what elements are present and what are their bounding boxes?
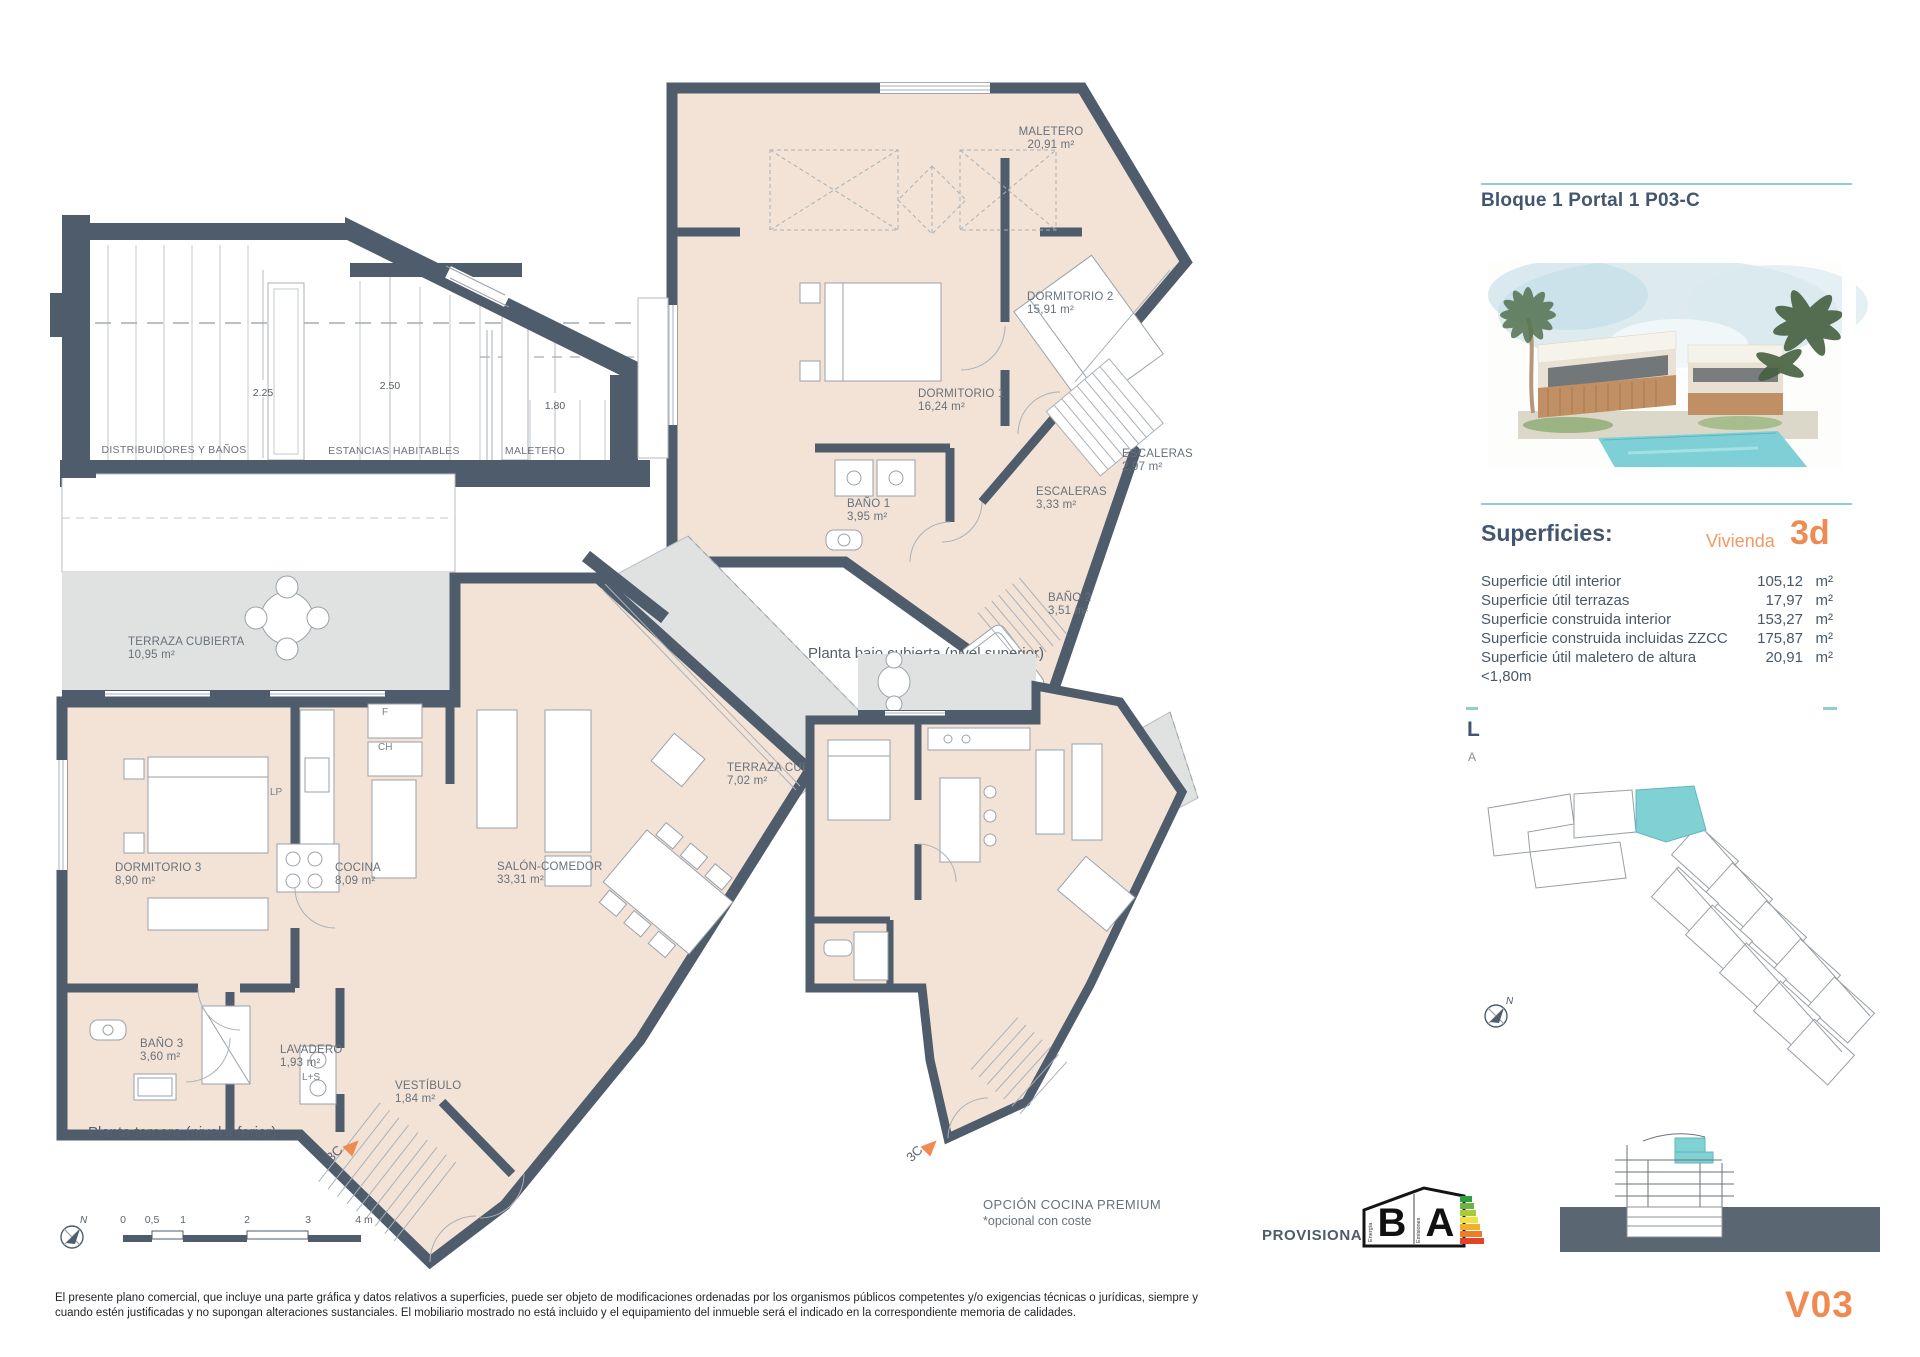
superficie-row: Superficie construida interior153,27m² [1481,610,1833,629]
cabinet [368,742,422,776]
room-label-dormitorio1: DORMITORIO 116,24 m² [918,388,1005,414]
svg-text:0: 0 [120,1214,126,1226]
room-label-escaleras: ESCALERAS3,33 m² [1036,486,1107,512]
room-label-bano3: BAÑO 33,60 m² [140,1038,183,1064]
height-dim: 1.80 [545,400,565,412]
disclaimer-line-2: cuando estén justificadas y no supongan … [55,1306,1076,1321]
toilet [824,940,852,956]
north-compass-icon: N [1485,996,1514,1027]
highlighted-floor [1675,1138,1705,1152]
lower-plan-caption: Planta tercera (nivel inferior) [88,1124,276,1141]
svg-text:1: 1 [180,1214,186,1226]
building-rendering [1478,253,1852,477]
sofa [1072,744,1102,840]
superficie-row: Superficie útil terrazas17,97m² [1481,591,1833,610]
kitchen-counter [928,728,1030,750]
zone-label: MALETERO [505,445,565,457]
superficies-heading: Superficies: [1481,520,1613,547]
toilet [90,1020,126,1040]
appliance-label-f: F [382,707,388,718]
svg-text:4 m: 4 m [355,1214,373,1226]
superficies-table: Superficie útil interior105,12m² Superfi… [1481,572,1833,686]
bed [148,757,268,853]
energy-rating-label: B A Energía Emisiones [1356,1180,1486,1260]
room-label-dormitorio2: DORMITORIO 215,91 m² [1027,291,1114,317]
teal-divider [1481,503,1852,505]
premium-plan-title: OPCIÓN COCINA PREMIUM [983,1197,1161,1212]
covered-terrace [62,572,455,694]
sheet-version: V03 [1785,1284,1854,1326]
energy-letter-b: B [1378,1201,1407,1245]
nightstand [124,759,144,779]
svg-text:N: N [1506,996,1514,1007]
north-compass-icon: N [61,1215,88,1248]
highlighted-unit [1636,786,1706,842]
room-label-salon: SALÓN-COMEDOR33,31 m² [497,861,602,887]
zone-label: ESTANCIAS HABITABLES [328,445,460,457]
building-section-key [1555,1125,1885,1260]
svg-text:N: N [80,1215,88,1226]
scale-bar: N 0 0,5 1 2 3 4 m [58,1205,388,1260]
teal-divider [1481,183,1852,185]
nightstand [124,833,144,853]
kitchen-island [940,778,980,862]
appliance-label-ls: L+S [302,1072,320,1083]
room-label-maletero: MALETERO20,91 m² [1019,126,1084,152]
premium-plan-drawing [790,640,1200,1190]
door-frame [502,313,528,460]
svg-text:Energía: Energía [1368,1222,1374,1242]
highlighted-floor [1675,1152,1713,1163]
cooktop [277,844,339,892]
page-title: Bloque 1 Portal 1 P03-C [1481,190,1700,212]
site-key-plan: N [1470,780,1880,1120]
svg-text:2: 2 [244,1214,250,1226]
superficie-row: Superficie útil interior105,12m² [1481,572,1833,591]
windows [56,760,67,870]
sofa [477,710,517,828]
svg-text:3: 3 [305,1214,311,1226]
teal-dash [1823,707,1837,710]
wardrobe [148,898,268,930]
svg-text:0,5: 0,5 [145,1214,160,1226]
plan-sheet: 2.25 2.50 1.80 DISTRIBUIDORES Y BAÑOS ES… [0,0,1920,1357]
shower [854,932,888,980]
bed [825,283,941,381]
teal-dash [1466,707,1478,710]
superficie-row: Superficie construida incluidas ZZCC175,… [1481,629,1833,648]
height-dim: 2.25 [253,387,273,399]
cropped-heading: L [1467,718,1480,742]
room-label-bano2: BAÑO 23,51 m² [1048,592,1091,618]
room-label-cocina: COCINA8,09 m² [335,862,381,888]
room-label-escaleras: ESCALERAS2,97 m² [1122,448,1193,474]
room-label-dormitorio3: DORMITORIO 38,90 m² [115,862,202,888]
fridge [368,704,422,738]
nightstand [800,361,820,381]
vivienda-code: 3d [1790,514,1830,553]
balcony [638,298,668,458]
building-block-left [1538,331,1676,418]
svg-text:Emisiones: Emisiones [1416,1217,1422,1243]
energy-letter-a: A [1426,1201,1455,1245]
bed [828,740,890,820]
cropped-subheading: A [1468,750,1476,764]
room-label-lavadero: LAVADERO1,93 m² [280,1044,343,1070]
sofa [545,710,591,852]
appliance-label-ch: CH [378,742,392,753]
zone-label: DISTRIBUIDORES Y BAÑOS [101,444,246,456]
energy-bars [1460,1196,1484,1244]
sofa [1036,750,1064,834]
room-label-terraza10: TERRAZA CUBIERTA10,95 m² [128,636,245,662]
disclaimer-line-1: El presente plano comercial, que incluye… [55,1291,1198,1306]
nightstand [800,283,820,303]
open-terrace [62,474,455,572]
room-label-vestibulo: VESTÍBULO1,84 m² [395,1080,461,1106]
superficie-row: Superficie útil maletero de altura <1,80… [1481,648,1833,686]
height-dim: 2.50 [380,380,400,392]
vivienda-label: Vivienda [1706,531,1775,552]
appliance-label-lp: LP [270,787,282,798]
premium-plan-subtitle: *opcional con coste [983,1214,1091,1228]
